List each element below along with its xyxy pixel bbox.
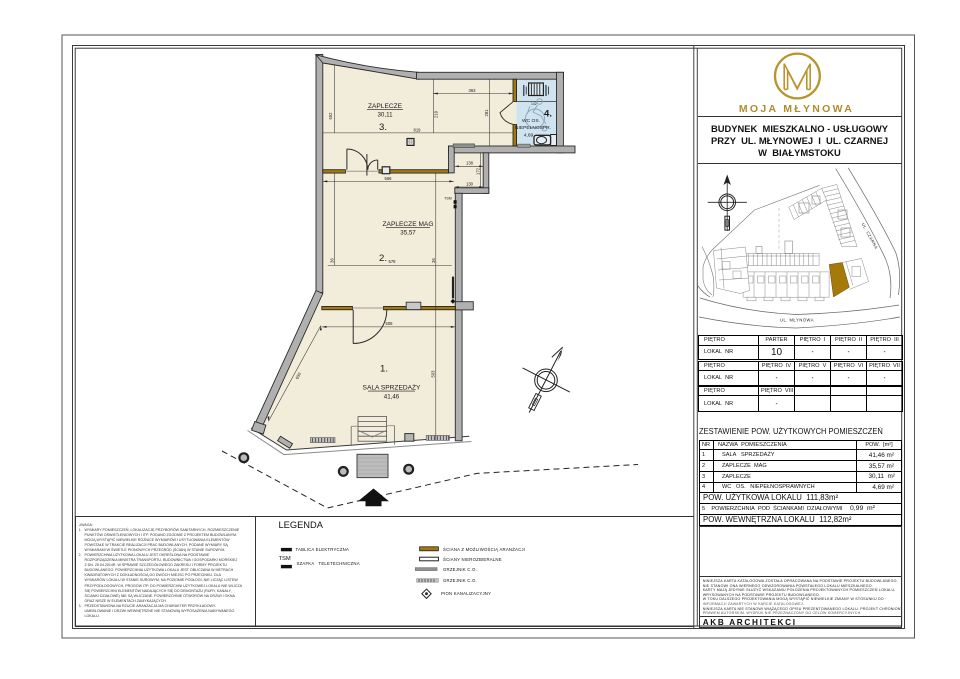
svg-text:219: 219: [434, 110, 439, 118]
svg-text:WC OS.: WC OS.: [522, 118, 540, 124]
svg-text:30,11: 30,11: [377, 111, 393, 118]
svg-text:UL. MŁYNOWA: UL. MŁYNOWA: [780, 318, 814, 323]
svg-text:138: 138: [466, 161, 474, 166]
svg-text:SALA SPRZEDAŻY: SALA SPRZEDAŻY: [363, 383, 421, 392]
svg-text:281: 281: [484, 109, 489, 117]
svg-text:35,57: 35,57: [400, 229, 416, 236]
svg-text:566: 566: [385, 176, 393, 181]
svg-text:1.: 1.: [380, 364, 388, 375]
svg-text:4,69: 4,69: [524, 133, 534, 139]
svg-text:503: 503: [430, 370, 435, 378]
svg-text:ZAPLECZE: ZAPLECZE: [368, 103, 403, 110]
svg-text:41,46: 41,46: [384, 393, 400, 400]
svg-text:652: 652: [328, 112, 333, 120]
svg-text:2.: 2.: [379, 253, 387, 264]
svg-text:508: 508: [386, 321, 394, 326]
svg-text:36: 36: [431, 258, 436, 263]
svg-text:819: 819: [414, 127, 422, 132]
svg-text:578: 578: [389, 259, 397, 264]
svg-text:NIEPEŁNOSPR.: NIEPEŁNOSPR.: [515, 125, 551, 131]
svg-text:3.: 3.: [379, 122, 387, 133]
svg-text:ZAPLECZE MAG: ZAPLECZE MAG: [383, 221, 434, 228]
svg-text:172: 172: [476, 167, 481, 175]
svg-text:142: 142: [531, 102, 537, 106]
svg-text:4.: 4.: [544, 109, 552, 120]
svg-text:363: 363: [469, 88, 477, 93]
svg-text:36: 36: [330, 258, 335, 263]
svg-text:TSM: TSM: [444, 196, 452, 200]
svg-text:130: 130: [466, 181, 474, 186]
svg-text:UL. CZARNA: UL. CZARNA: [861, 222, 880, 250]
